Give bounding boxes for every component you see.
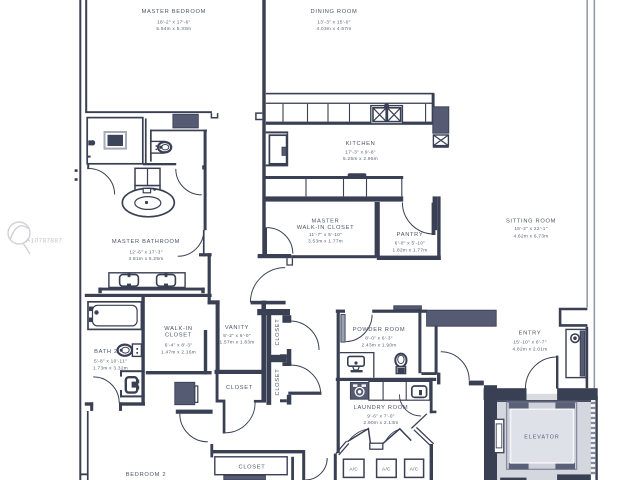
svg-text:17'-3" x 9'-8": 17'-3" x 9'-8" [345,149,375,154]
svg-text:A/C: A/C [410,466,419,471]
svg-text:13'-3" x 15'-0": 13'-3" x 15'-0" [317,19,350,24]
svg-text:SITTING ROOM: SITTING ROOM [506,219,556,225]
svg-text:12'-6" x 17'-3": 12'-6" x 17'-3" [129,249,162,254]
svg-text:CLOSET: CLOSET [226,385,253,391]
svg-text:MASTER BEDROOM: MASTER BEDROOM [142,9,206,15]
svg-text:BEDROOM 2: BEDROOM 2 [126,472,166,478]
svg-text:15'-10" x 6'-7": 15'-10" x 6'-7" [513,340,546,345]
svg-text:4.03m x 4.57m: 4.03m x 4.57m [317,26,352,31]
svg-text:POWDER ROOM: POWDER ROOM [353,327,406,333]
svg-text:4.62m x 6.73m: 4.62m x 6.73m [514,233,549,238]
svg-text:1.73m x 3.32m: 1.73m x 3.32m [93,366,128,371]
svg-text:3.81m x 5.25m: 3.81m x 5.25m [129,256,164,261]
svg-text:5'-8" x 10'-11": 5'-8" x 10'-11" [94,359,127,364]
svg-text:4.82m x 2.01m: 4.82m x 2.01m [513,347,548,352]
svg-text:A/C: A/C [382,466,391,471]
svg-text:A/C: A/C [349,466,358,471]
svg-text:PANTRY: PANTRY [397,232,424,238]
svg-text:3.53m x 1.77m: 3.53m x 1.77m [308,239,343,244]
svg-text:ELEVATOR: ELEVATOR [524,434,559,440]
svg-text:BATH 2: BATH 2 [94,349,118,355]
svg-text:CLOSET: CLOSET [275,319,281,346]
svg-text:1.82m x 1.77m: 1.82m x 1.77m [393,248,428,253]
svg-text:CLOSET: CLOSET [275,369,281,396]
svg-text:11'-7" x 5'-10": 11'-7" x 5'-10" [309,232,342,237]
svg-text:ENTRY: ENTRY [519,331,542,337]
svg-text:1.57m x 1.83m: 1.57m x 1.83m [220,340,255,345]
svg-text:15'-2" x 22'-1": 15'-2" x 22'-1" [514,226,547,231]
svg-text:1.47m x 2.16m: 1.47m x 2.16m [161,350,196,355]
svg-text:WALK-IN: WALK-IN [164,326,192,332]
svg-text:2.90m x 2.13m: 2.90m x 2.13m [364,420,399,425]
svg-text:LAUNDRY ROOM: LAUNDRY ROOM [354,405,409,411]
svg-text:MASTER BATHROOM: MASTER BATHROOM [112,239,180,245]
svg-text:6'-0" x 5'-10": 6'-0" x 5'-10" [395,240,425,245]
svg-text:A10787887: A10787887 [26,238,62,245]
svg-text:5.25m x 2.95m: 5.25m x 2.95m [343,156,378,161]
svg-text:9'-6" x 7'-0": 9'-6" x 7'-0" [367,414,395,419]
svg-text:2.43m x 1.90m: 2.43m x 1.90m [362,342,397,347]
svg-text:VANITY: VANITY [225,325,249,331]
svg-text:8'-0" x 6'-3": 8'-0" x 6'-3" [365,336,393,341]
svg-text:WALK-IN CLOSET: WALK-IN CLOSET [297,225,355,231]
svg-text:CLOSET: CLOSET [165,333,192,339]
svg-text:18'-2" x 17'-6": 18'-2" x 17'-6" [157,19,190,24]
svg-text:MASTER: MASTER [312,218,340,224]
svg-text:6'-4" x 8'-3": 6'-4" x 8'-3" [165,343,193,348]
svg-text:5'-2" x 6'-0": 5'-2" x 6'-0" [223,333,251,338]
svg-text:KITCHEN: KITCHEN [346,141,376,147]
svg-text:DINING ROOM: DINING ROOM [311,9,358,15]
svg-text:CLOSET: CLOSET [239,464,266,470]
svg-text:5.54m x 5.33m: 5.54m x 5.33m [156,26,191,31]
